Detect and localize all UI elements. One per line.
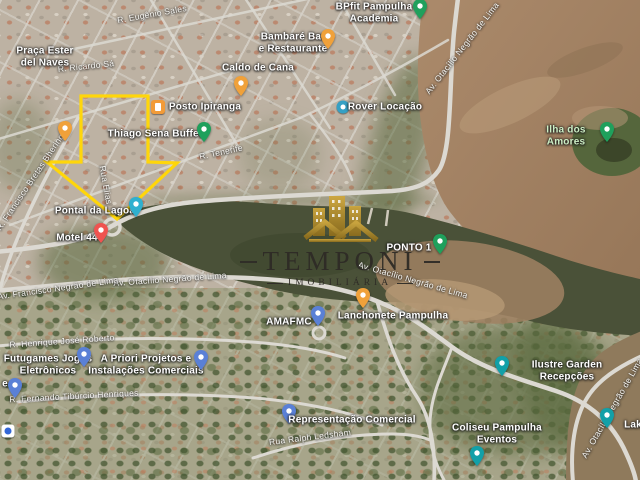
hotel-pin-icon — [94, 223, 109, 243]
map-pin-icon — [311, 306, 326, 326]
restaurant-pin-icon[interactable] — [58, 121, 73, 141]
poi-label: AMAFMC — [266, 316, 312, 328]
poi-label: Ilustre Garden Recepções — [531, 360, 604, 383]
poi-label: Lanchonete Pampulha — [338, 310, 449, 322]
poi-label: Lak — [624, 419, 640, 431]
map-pin-icon — [8, 378, 23, 398]
satellite-map[interactable]: TEMPONI IMOBILIÁRIA R. Eugênio Sales R. … — [0, 0, 640, 480]
venue-pin-icon — [495, 356, 510, 376]
map-pin-icon — [413, 0, 428, 19]
poi-praca-ester-del-naves[interactable]: Praça Ester del Naves — [16, 46, 73, 69]
poi-label: A Priori Projetos e Instalações Comercia… — [88, 354, 204, 377]
gas-station-icon — [151, 100, 165, 114]
map-pin-icon — [433, 234, 448, 254]
venue-pin-icon — [470, 446, 485, 466]
poi-label: Thiago Sena Buffet — [108, 128, 203, 140]
water-pin-icon — [129, 197, 144, 217]
poi-label: Caldo de Cana — [222, 62, 294, 74]
poi-label: PONTO 1 — [386, 242, 431, 254]
restaurant-pin-icon — [356, 288, 371, 308]
map-pin-icon — [197, 122, 212, 142]
map-pin-icon — [194, 350, 209, 370]
poi-label: Motel 44 — [56, 232, 98, 244]
venue-pin-icon — [600, 408, 615, 428]
poi-label: Coliseu Pampulha Eventos — [452, 423, 542, 446]
transit-station-icon[interactable] — [2, 425, 15, 438]
poi-label: Posto Ipiranga — [169, 101, 241, 113]
poi-label: Representação Comercial — [288, 414, 415, 426]
restaurant-pin-icon — [234, 76, 249, 96]
poi-label: Pontal da Lagoa — [55, 205, 135, 217]
poi-label: Ilha dos Amores — [529, 125, 603, 148]
poi-label: BPfit Pampulha Academia — [336, 2, 413, 25]
poi-label: Bambaré Bar e Restaurante — [259, 32, 328, 55]
restaurant-pin-icon — [321, 29, 336, 49]
park-pin-icon — [600, 122, 615, 142]
poi-label: Rover Locação — [348, 101, 422, 113]
